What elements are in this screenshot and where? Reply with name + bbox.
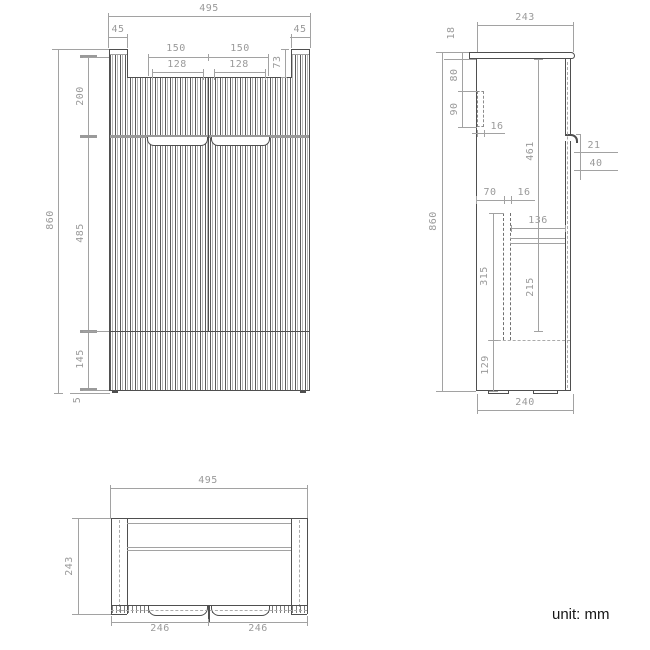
dim-bottom-width: 495 [198,476,218,486]
dim-side-depth: 243 [515,13,535,23]
dim-front-groove-right: 150 [230,44,250,54]
dim-side-door-h: 461 [526,141,536,161]
dim-front-inner-right: 128 [229,60,249,70]
dim-side-inner-h: 215 [526,277,536,297]
dim-side-handle-h: 40 [589,159,602,169]
dim-front-side-left: 45 [111,25,124,35]
drawing-sheet: 495 45 45 150 150 128 128 73 860 200 485… [0,0,650,650]
dim-side-handle-d: 21 [587,141,600,151]
dim-front-groove-left: 150 [166,44,186,54]
dim-side-bracket-h: 90 [450,102,460,115]
dim-bottom-door-right: 246 [248,624,268,634]
dim-front-top: 200 [76,86,86,106]
dim-side-rail-offset: 70 [483,188,496,198]
dim-side-bottom-h: 129 [481,355,491,375]
dim-front-recess: 73 [273,55,283,68]
dim-front-overall-width: 495 [199,4,219,14]
dim-front-height: 860 [46,210,56,230]
dim-front-inner-left: 128 [167,60,187,70]
dim-side-top-thick: 18 [447,26,457,39]
unit-label: unit: mm [552,606,610,623]
dim-front-foot: 5 [73,397,83,404]
front-handle-left [147,137,208,146]
front-handle-right [211,137,270,146]
dim-side-base-depth: 240 [515,398,535,408]
dim-side-bracket-offset: 80 [450,68,460,81]
dim-front-middle: 485 [76,223,86,243]
dim-side-rail-w: 16 [517,188,530,198]
dim-side-drawer-h: 315 [480,266,490,286]
dim-front-side-right: 45 [293,25,306,35]
dim-side-height: 860 [429,211,439,231]
side-top-panel [469,52,575,59]
dim-bottom-depth: 243 [65,556,75,576]
dim-bottom-door-left: 246 [150,624,170,634]
dim-side-bracket-w: 16 [490,122,503,132]
wall-bracket-hidden [477,91,484,127]
dim-front-bottom: 145 [76,349,86,369]
